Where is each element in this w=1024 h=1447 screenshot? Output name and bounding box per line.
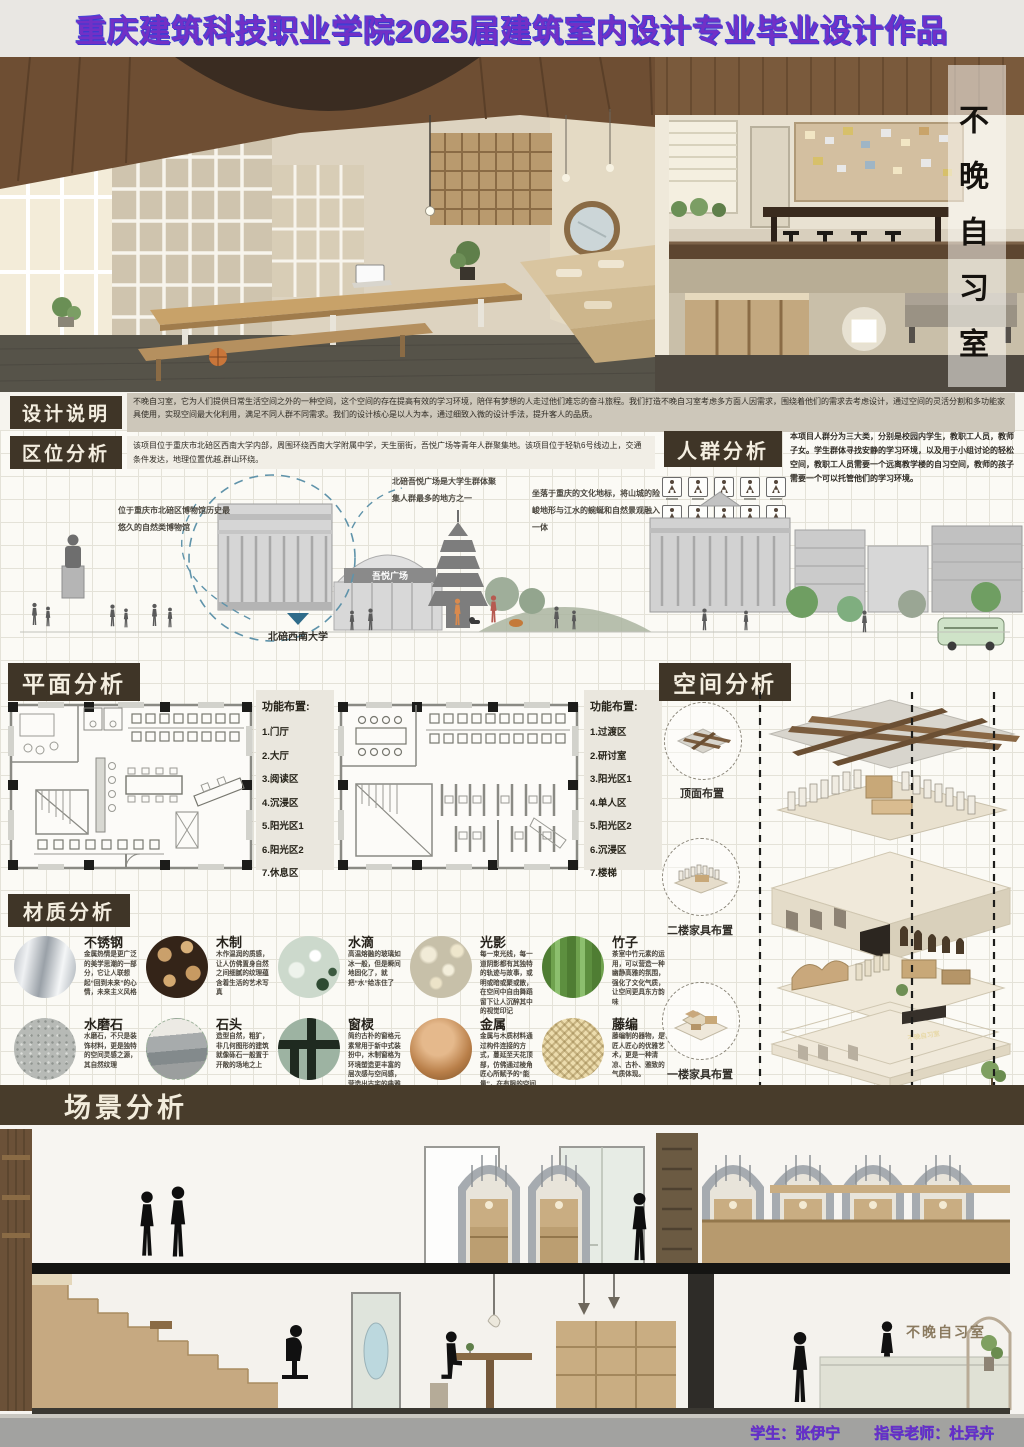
- poster-root: 重庆建筑科技职业学院2025届建筑室内设计专业毕业设计作品: [0, 0, 1024, 1447]
- function-item: 7.休息区: [262, 865, 328, 879]
- student-credit: 学生：张伊宁: [750, 1422, 840, 1443]
- function-list-level2: 功能布置: 1.过渡区 2.研讨室 3.阳光区1 4.单人区 5.阳光区2 6.…: [584, 690, 662, 870]
- function-list-title: 功能布置:: [262, 698, 328, 714]
- poster-header: 重庆建筑科技职业学院2025届建筑室内设计专业毕业设计作品: [0, 0, 1024, 57]
- section-banner-scene: 场景分析: [0, 1085, 1024, 1125]
- material-name: 木制: [216, 932, 242, 951]
- scene-section-drawing: 不晚自习室: [0, 1125, 1024, 1418]
- space-layer-label: 顶面布置: [642, 785, 762, 801]
- material-card: 窗棂 简约古朴的窗格元素常用于新中式装扮中，木制窗格为环境塑造更丰富的层次感与空…: [276, 1014, 404, 1096]
- material-desc: 金属热情是更广泛的美学思潮的一部分，它让人联想起“回到未来”的心情，未来主义风格: [84, 950, 142, 998]
- material-swatch-terrazzo: [14, 1018, 76, 1080]
- function-item: 6.沉浸区: [590, 842, 656, 856]
- material-name: 藤编: [612, 1014, 638, 1033]
- material-name: 竹子: [612, 932, 638, 951]
- svg-text:吾悦广场: 吾悦广场: [372, 570, 408, 581]
- material-desc: 高温熔融的玻璃如冰一般，但是瞬间地固化了，就把“水”给冻住了: [348, 950, 406, 988]
- material-swatch-light-shadow: [410, 936, 472, 998]
- material-swatch-stone: [146, 1018, 208, 1080]
- svg-text:不晚自习室: 不晚自习室: [906, 1324, 986, 1340]
- hero-renders: 不晚自习室: [0, 57, 1024, 392]
- project-vertical-title: 不晚自习室: [948, 65, 1006, 387]
- material-card: 水滴 高温熔融的玻璃如冰一般，但是瞬间地固化了，就把“水”给冻住了: [276, 932, 404, 1014]
- site-montage: 吾悦广场: [0, 470, 1024, 662]
- material-desc: 藤编制的器物，是匠人匠心的优雅艺术，更是一种清凉、古朴、雅致的气质体现。: [612, 1032, 670, 1080]
- section-title-crowd: 人群分析: [664, 431, 782, 467]
- advisor-credit: 指导老师：杜异卉: [874, 1422, 994, 1443]
- material-swatch-stainless: [14, 936, 76, 998]
- function-item: 2.大厅: [262, 748, 328, 762]
- material-swatch-waterdrop: [278, 936, 340, 998]
- function-item: 3.阅读区: [262, 771, 328, 785]
- material-swatch-lattice: [278, 1018, 340, 1080]
- material-swatch-metal: [410, 1018, 472, 1080]
- section-title-material: 材质分析: [8, 894, 130, 927]
- function-item: 4.沉浸区: [262, 795, 328, 809]
- material-name: 石头: [216, 1014, 242, 1033]
- material-card: 竹子 茶室中竹元素的运用，可以营造一种幽静高雅的氛围，强化了文化气质，让空间更具…: [540, 932, 668, 1014]
- material-card: 水磨石 水磨石，不只是装饰材料，更是独特的空间灵感之源，其自然纹理: [12, 1014, 140, 1096]
- function-item: 6.阳光区2: [262, 842, 328, 856]
- function-item: 7.楼梯: [590, 865, 656, 879]
- section-title-scene: 场景分析: [64, 1086, 188, 1125]
- material-desc: 木作温润的质感，让人仿佛置身自然之间细腻的纹理蕴含着生活的艺术写真: [216, 950, 274, 998]
- function-item: 5.阳光区1: [262, 818, 328, 832]
- site-annotation: 位于重庆市北碚区博物馆历史最悠久的自然类博物馆: [118, 503, 236, 537]
- detail-circle-ceiling: [664, 702, 742, 780]
- material-card: 木制 木作温润的质感，让人仿佛置身自然之间细腻的纹理蕴含着生活的艺术写真: [144, 932, 272, 1014]
- material-swatch-bamboo: [542, 936, 604, 998]
- material-name: 光影: [480, 932, 506, 951]
- section-title-location: 区位分析: [10, 436, 122, 469]
- design-description-text: 不晚自习室，它为人们提供日常生活空间之外的一种空间，这个空间的存在提高有效的学习…: [127, 393, 1015, 432]
- render-main-room: [0, 57, 655, 392]
- material-name: 金属: [480, 1014, 506, 1033]
- material-desc: 每一束光线，每一道阴影都有其独特的轨迹与故事，或明或暗或聚或散，在空间中自由舞蹈…: [480, 950, 538, 1017]
- material-card: 金属 金属与木质材料通过构件连接的方式，蔓延至天花顶部，仿佛通过棱角匠心所赋予的…: [408, 1014, 536, 1096]
- function-item: 3.阳光区1: [590, 771, 656, 785]
- site-marker-label: 北碚西南大学: [268, 632, 328, 643]
- function-list-title: 功能布置:: [590, 698, 656, 714]
- section-title-plan: 平面分析: [8, 663, 140, 701]
- footer-credits: 学生：张伊宁 指导老师：杜异卉: [0, 1418, 1024, 1447]
- function-list-level1: 功能布置: 1.门厅 2.大厅 3.阅读区 4.沉浸区 5.阳光区1 6.阳光区…: [256, 690, 334, 870]
- detail-circle-floor1: [662, 982, 740, 1060]
- function-item: 1.门厅: [262, 724, 328, 738]
- floor-plan-level2: [338, 700, 580, 874]
- material-card: 藤编 藤编制的器物，是匠人匠心的优雅艺术，更是一种清凉、古朴、雅致的气质体现。: [540, 1014, 668, 1096]
- function-item: 1.过渡区: [590, 724, 656, 738]
- location-analysis-text: 该项目位于重庆市北碚区西南大学内部，周围环绕西南大学附属中学，天生丽街，吾悦广场…: [127, 436, 655, 469]
- material-name: 不锈钢: [84, 932, 123, 951]
- material-swatch-wood: [146, 936, 208, 998]
- material-desc: 茶室中竹元素的运用，可以营造一种幽静高雅的氛围，强化了文化气质，让空间更具东方韵…: [612, 950, 670, 1007]
- material-desc: 造型自然，粗犷，非几何图形的建筑就像砾石一般置于开敞的场地之上: [216, 1032, 274, 1070]
- site-marker: 北碚西南大学: [238, 613, 358, 643]
- material-card: 不锈钢 金属热情是更广泛的美学思潮的一部分，它让人联想起“回到未来”的心情，未来…: [12, 932, 140, 1014]
- detail-circle-floor2: [662, 838, 740, 916]
- material-card: 石头 造型自然，粗犷，非几何图形的建筑就像砾石一般置于开敞的场地之上: [144, 1014, 272, 1096]
- function-item: 2.研讨室: [590, 748, 656, 762]
- section-title-design: 设计说明: [10, 396, 122, 429]
- function-item: 5.阳光区2: [590, 818, 656, 832]
- floor-plan-level1: [8, 700, 254, 874]
- material-desc: 水磨石，不只是装饰材料，更是独特的空间灵感之源，其自然纹理: [84, 1032, 142, 1070]
- site-annotation: 坐落于重庆的文化地标，将山城的险峻地形与江水的蜿蜒和自然景观融入一体: [532, 486, 664, 536]
- exploded-axonometric: 不晚自习室: [752, 692, 1024, 1088]
- poster-title: 重庆建筑科技职业学院2025届建筑室内设计专业毕业设计作品: [76, 6, 949, 51]
- map-pin-triangle-icon: [287, 613, 309, 625]
- material-swatch-rattan: [542, 1018, 604, 1080]
- site-annotation: 北碚吾悦广场是大学生群体聚集人群最多的地方之一: [392, 474, 496, 508]
- material-name: 水滴: [348, 932, 374, 951]
- material-name: 水磨石: [84, 1014, 123, 1033]
- material-name: 窗棂: [348, 1014, 374, 1033]
- material-card: 光影 每一束光线，每一道阴影都有其独特的轨迹与故事，或明或暗或聚或散，在空间中自…: [408, 932, 536, 1014]
